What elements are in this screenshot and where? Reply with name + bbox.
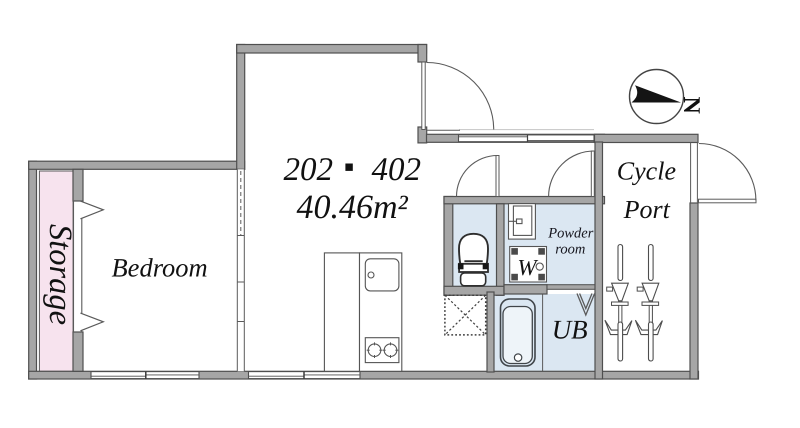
svg-text:room: room (555, 241, 585, 257)
svg-text:Powder: Powder (547, 225, 593, 241)
svg-text:N: N (678, 97, 704, 115)
svg-text:Storage: Storage (42, 224, 78, 325)
svg-text:W: W (517, 255, 538, 280)
svg-text:Bedroom: Bedroom (112, 253, 208, 283)
svg-text:Cycle: Cycle (617, 157, 676, 186)
svg-text:UB: UB (552, 314, 588, 344)
svg-text:402: 402 (372, 152, 422, 188)
svg-text:202: 202 (284, 152, 334, 188)
svg-text:40.46m²: 40.46m² (297, 189, 409, 226)
svg-text:Port: Port (623, 195, 671, 224)
